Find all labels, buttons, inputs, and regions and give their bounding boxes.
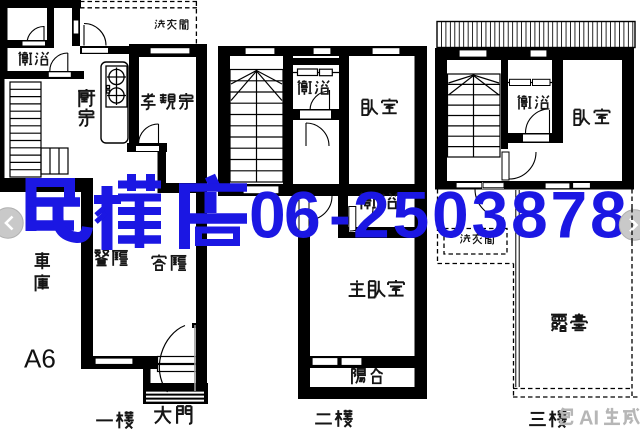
svg-text:0 6 - 2 5 0 3 8 7 8: 0 6 - 2 5 0 3 8 7 8 [249,178,627,252]
svg-text:A6: A6 [24,344,56,374]
svg-text:AI: AI [579,408,599,430]
